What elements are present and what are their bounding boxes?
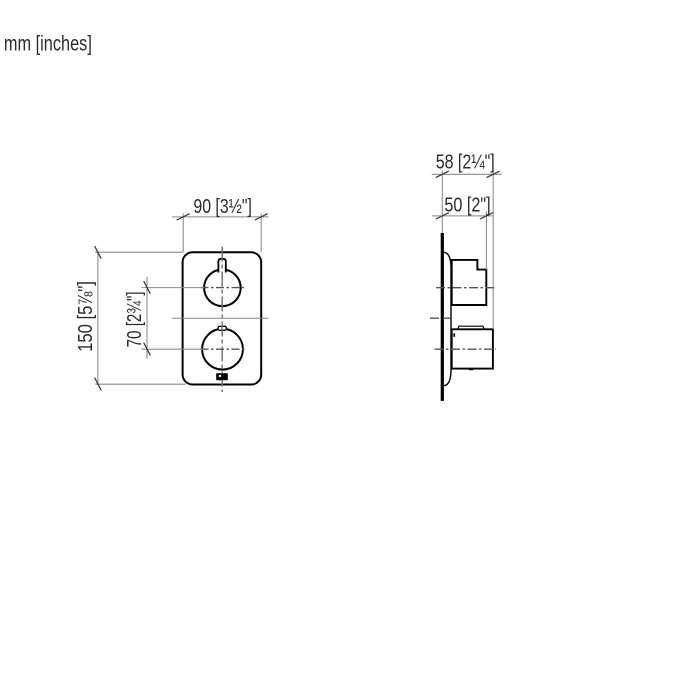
svg-text:150 [5⅞"]: 150 [5⅞"] — [74, 281, 97, 352]
svg-text:mm [inches]: mm [inches] — [4, 33, 92, 56]
svg-text:58 [2¼"]: 58 [2¼"] — [436, 151, 495, 174]
svg-text:50 [2"]: 50 [2"] — [444, 194, 490, 217]
svg-text:70 [2¾"]: 70 [2¾"] — [123, 291, 146, 347]
svg-text:90 [3½"]: 90 [3½"] — [193, 195, 252, 218]
